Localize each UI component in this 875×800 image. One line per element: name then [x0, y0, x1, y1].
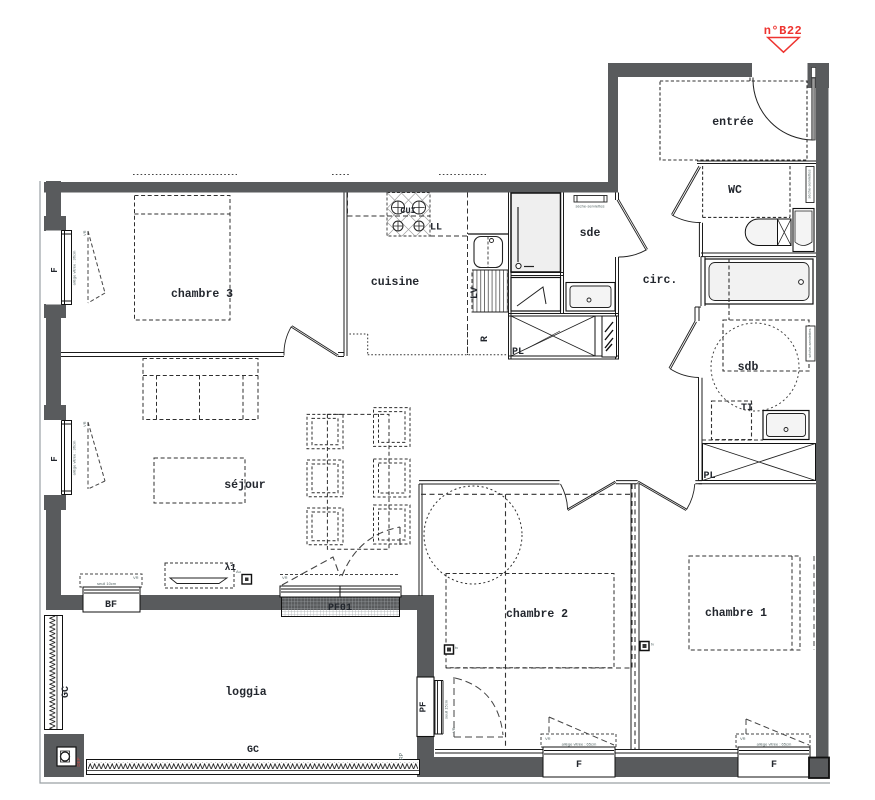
svg-text:VR: VR	[740, 736, 746, 741]
svg-text:n°B22: n°B22	[764, 24, 803, 38]
svg-text:F: F	[576, 760, 582, 771]
svg-text:RP: RP	[399, 752, 405, 760]
svg-text:allège vitrée : 65cm: allège vitrée : 65cm	[562, 742, 597, 747]
svg-text:PL: PL	[704, 471, 716, 482]
svg-text:sde: sde	[580, 227, 601, 240]
svg-text:seuil 10cm: seuil 10cm	[97, 581, 117, 586]
svg-text:VR: VR	[82, 230, 87, 236]
svg-text:allège vitrée : 36cm: allège vitrée : 36cm	[72, 440, 77, 475]
svg-text:VR: VR	[451, 727, 456, 733]
svg-text:PL: PL	[512, 347, 524, 358]
svg-text:WC: WC	[728, 184, 742, 197]
svg-text:BF: BF	[105, 600, 117, 611]
svg-text:TI: TI	[741, 403, 753, 414]
svg-text:loggia: loggia	[225, 686, 267, 699]
svg-text:sèche-serviettes: sèche-serviettes	[575, 204, 604, 209]
svg-text:allège vitrée : 65cm: allège vitrée : 65cm	[757, 742, 792, 747]
svg-text:DEP: DEP	[76, 757, 81, 766]
svg-text:F: F	[50, 267, 60, 272]
svg-text:chambre 3: chambre 3	[171, 288, 233, 301]
svg-text:VR: VR	[82, 421, 87, 427]
svg-text:PF: PF	[419, 702, 429, 713]
svg-text:tv: tv	[455, 645, 458, 650]
svg-text:VR: VR	[282, 575, 288, 580]
svg-text:tv: tv	[651, 642, 654, 647]
svg-text:cuisine: cuisine	[371, 276, 419, 289]
svg-text:chambre 2: chambre 2	[506, 608, 568, 621]
svg-text:chambre 1: chambre 1	[705, 607, 767, 620]
svg-text:F: F	[771, 760, 777, 771]
svg-text:F: F	[50, 456, 60, 461]
svg-text:sèche-serviettes: sèche-serviettes	[807, 328, 812, 357]
svg-text:GC: GC	[61, 686, 72, 698]
svg-text:LV: LV	[470, 287, 481, 299]
svg-text:CUI: CUI	[400, 206, 415, 216]
svg-text:allège vitrée : 36cm: allège vitrée : 36cm	[72, 250, 77, 285]
svg-text:GC: GC	[247, 745, 259, 756]
svg-text:entrée: entrée	[712, 116, 754, 129]
svg-text:sdb: sdb	[738, 361, 759, 374]
svg-text:λ1: λ1	[225, 562, 237, 573]
svg-text:seuil 15cm: seuil 15cm	[444, 699, 449, 719]
svg-text:VR: VR	[133, 575, 139, 580]
svg-text:sèche-serviettes: sèche-serviettes	[807, 169, 812, 198]
svg-text:PF01: PF01	[328, 603, 352, 614]
svg-text:R: R	[480, 336, 491, 342]
svg-text:circ.: circ.	[643, 274, 678, 287]
svg-text:LL: LL	[430, 223, 442, 234]
svg-text:Au: Au	[236, 569, 241, 574]
svg-text:VR: VR	[545, 736, 551, 741]
